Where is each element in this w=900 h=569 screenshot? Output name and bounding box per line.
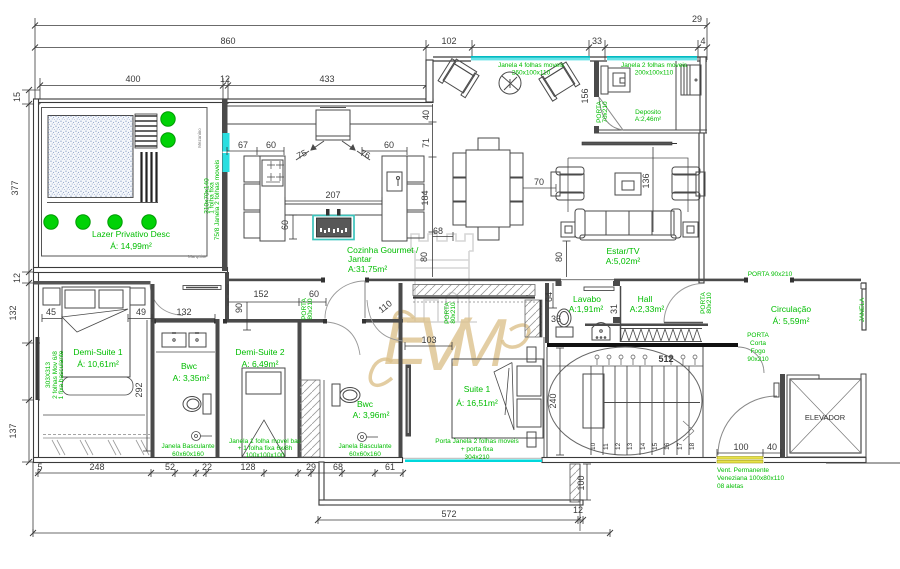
svg-text:Porta Janela 2 folhas moveis: Porta Janela 2 folhas moveis — [435, 438, 519, 445]
svg-text:33: 33 — [592, 36, 602, 46]
svg-text:102: 102 — [441, 36, 456, 46]
svg-text:90x210: 90x210 — [747, 356, 769, 363]
svg-text:100: 100 — [576, 475, 586, 490]
svg-text:Deposito: Deposito — [635, 109, 661, 116]
svg-text:64: 64 — [544, 292, 554, 302]
svg-text:80x210: 80x210 — [450, 302, 457, 324]
svg-text:40: 40 — [421, 110, 431, 120]
svg-text:+ porta fixa: + porta fixa — [461, 446, 494, 453]
svg-text:260x100x110: 260x100x110 — [512, 70, 551, 77]
svg-text:860: 860 — [220, 36, 235, 46]
svg-text:45: 45 — [46, 307, 56, 317]
svg-text:1 fixa basculante: 1 fixa basculante — [58, 350, 65, 399]
svg-text:Janela 4 folhas moveis: Janela 4 folhas moveis — [498, 62, 565, 69]
svg-text:A: 6,49m²: A: 6,49m² — [242, 359, 279, 369]
svg-text:207: 207 — [325, 190, 340, 200]
svg-text:103: 103 — [421, 335, 436, 345]
svg-text:60: 60 — [384, 140, 394, 150]
svg-text:40: 40 — [767, 442, 777, 452]
svg-text:80: 80 — [554, 252, 564, 262]
svg-text:Janela Basculante: Janela Basculante — [338, 443, 392, 450]
svg-text:Janela 1 folha movel bas: Janela 1 folha movel bas — [229, 438, 302, 445]
svg-text:18: 18 — [689, 442, 696, 450]
svg-text:Janela 2 folhas moveis: Janela 2 folhas moveis — [621, 62, 688, 69]
svg-text:Janela Basculante: Janela Basculante — [161, 443, 215, 450]
svg-text:Marquise: Marquise — [188, 254, 207, 259]
svg-text:100: 100 — [733, 442, 748, 452]
svg-text:08 aletas: 08 aletas — [717, 483, 744, 490]
svg-text:184: 184 — [420, 190, 430, 205]
svg-text:310x70x140: 310x70x140 — [204, 178, 211, 214]
svg-text:JANELA: JANELA — [859, 297, 866, 322]
svg-text:80x210: 80x210 — [706, 292, 713, 314]
svg-text:A: 3,35m²: A: 3,35m² — [173, 373, 210, 383]
svg-text:Á: 14,99m²: Á: 14,99m² — [110, 241, 152, 251]
svg-text:PORTA 90x210: PORTA 90x210 — [748, 271, 793, 278]
svg-text:11: 11 — [603, 443, 610, 450]
svg-text:22: 22 — [202, 462, 212, 472]
svg-text:60: 60 — [309, 289, 319, 299]
svg-text:A:2,33m²: A:2,33m² — [630, 304, 665, 314]
svg-text:Suite 1: Suite 1 — [464, 384, 491, 394]
svg-text:512: 512 — [658, 354, 673, 364]
svg-text:70: 70 — [534, 177, 544, 187]
svg-text:A:1,91m²: A:1,91m² — [569, 304, 604, 314]
svg-text:36: 36 — [551, 314, 561, 324]
svg-text:433: 433 — [319, 74, 334, 84]
svg-text:71: 71 — [421, 138, 431, 148]
svg-text:+ 1 folha fixa 6x/8h: + 1 folha fixa 6x/8h — [238, 445, 293, 452]
svg-text:A:31,75m²: A:31,75m² — [348, 264, 387, 274]
svg-text:Veneziana 100x80x110: Veneziana 100x80x110 — [717, 475, 784, 482]
svg-text:Circulação: Circulação — [771, 304, 811, 314]
svg-text:377: 377 — [10, 180, 20, 195]
svg-text:ELEVADOR: ELEVADOR — [805, 413, 846, 422]
svg-text:68: 68 — [433, 226, 443, 236]
svg-text:Corta: Corta — [750, 340, 766, 347]
svg-text:60: 60 — [266, 140, 276, 150]
svg-text:.: . — [265, 287, 268, 297]
svg-text:60: 60 — [280, 220, 290, 230]
svg-text:12: 12 — [573, 505, 583, 515]
svg-text:17: 17 — [677, 442, 684, 450]
svg-text:Lazer Privativo Desc: Lazer Privativo Desc — [92, 229, 171, 239]
svg-text:Demi-Suite 1: Demi-Suite 1 — [73, 347, 122, 357]
svg-text:10: 10 — [590, 442, 597, 450]
svg-text:Demi-Suite 2: Demi-Suite 2 — [235, 347, 284, 357]
svg-text:132: 132 — [8, 305, 18, 320]
svg-text:12: 12 — [220, 74, 230, 84]
svg-text:A:2,46m²: A:2,46m² — [635, 116, 662, 123]
svg-text:.: . — [526, 288, 529, 298]
svg-text:Á: 5,59m²: Á: 5,59m² — [773, 316, 810, 326]
svg-text:12: 12 — [615, 442, 622, 450]
svg-text:67: 67 — [238, 140, 248, 150]
svg-text:292: 292 — [134, 382, 144, 397]
svg-text:572: 572 — [441, 509, 456, 519]
svg-text:70x210: 70x210 — [602, 101, 609, 123]
svg-text:PORTA: PORTA — [747, 332, 769, 339]
svg-text:68: 68 — [333, 462, 343, 472]
svg-text:100x100x100: 100x100x100 — [245, 452, 284, 459]
svg-text:128: 128 — [240, 462, 255, 472]
svg-text:13: 13 — [627, 442, 634, 450]
svg-text:80: 80 — [419, 252, 429, 262]
svg-text:60x60x160: 60x60x160 — [349, 451, 381, 458]
svg-text:61: 61 — [385, 462, 395, 472]
svg-text:90: 90 — [234, 303, 244, 313]
svg-text:Lavabo: Lavabo — [573, 294, 601, 304]
svg-text:15: 15 — [12, 92, 22, 102]
svg-text:Á: 10,61m²: Á: 10,61m² — [77, 359, 119, 369]
svg-text:Hall: Hall — [638, 294, 653, 304]
svg-text:400: 400 — [125, 74, 140, 84]
svg-text:15: 15 — [652, 442, 659, 450]
svg-text:49: 49 — [136, 307, 146, 317]
svg-text:156: 156 — [580, 88, 590, 103]
svg-text:Bwc: Bwc — [181, 361, 198, 371]
svg-text:4: 4 — [700, 36, 705, 46]
svg-text:304x210: 304x210 — [465, 454, 490, 461]
svg-text:Bwc: Bwc — [357, 399, 374, 409]
svg-text:240: 240 — [548, 393, 558, 408]
svg-text:200x100x110: 200x100x110 — [635, 70, 674, 77]
svg-text:Mezanino: Mezanino — [197, 128, 202, 148]
svg-text:80x210: 80x210 — [307, 298, 314, 320]
svg-text:5: 5 — [37, 462, 42, 472]
svg-text:Jantar: Jantar — [348, 254, 372, 264]
svg-text:52: 52 — [165, 462, 175, 472]
svg-text:A: 3,96m²: A: 3,96m² — [353, 410, 390, 420]
svg-text:248: 248 — [89, 462, 104, 472]
svg-text:Vent. Permanente: Vent. Permanente — [717, 467, 769, 474]
svg-text:303X313: 303X313 — [45, 362, 52, 388]
svg-text:29: 29 — [692, 14, 702, 24]
svg-text:Á: 16,51m²: Á: 16,51m² — [456, 398, 498, 408]
svg-text:31: 31 — [609, 304, 619, 314]
svg-text:A:5,02m²: A:5,02m² — [606, 256, 641, 266]
svg-text:132: 132 — [176, 307, 191, 317]
svg-text:Estar/TV: Estar/TV — [606, 246, 639, 256]
svg-text:136: 136 — [641, 173, 651, 188]
svg-text:60x60x160: 60x60x160 — [172, 451, 204, 458]
svg-text:14: 14 — [640, 442, 647, 450]
svg-text:Fogo: Fogo — [751, 348, 766, 355]
svg-text:29: 29 — [306, 462, 316, 472]
svg-text:16: 16 — [664, 442, 671, 450]
svg-text:12: 12 — [12, 273, 22, 283]
svg-text:137: 137 — [8, 423, 18, 438]
